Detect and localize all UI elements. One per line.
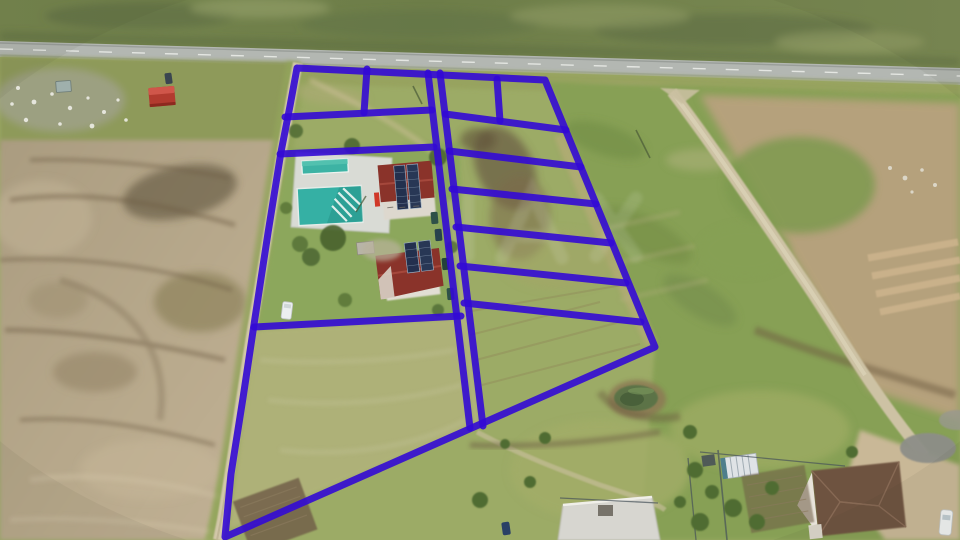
blue-barrel bbox=[501, 522, 511, 536]
aerial-photo bbox=[0, 0, 960, 540]
dark-shed bbox=[701, 454, 715, 467]
courtyard bbox=[362, 239, 402, 261]
white-van bbox=[281, 301, 293, 319]
foundation-slab bbox=[558, 497, 660, 540]
scene-layer bbox=[0, 0, 960, 540]
house-2-solar-panels bbox=[404, 240, 433, 273]
red-container bbox=[148, 86, 176, 107]
debris-area bbox=[0, 57, 300, 150]
tool-shed bbox=[56, 80, 72, 92]
lap-pool bbox=[302, 159, 349, 174]
main-pool bbox=[297, 185, 363, 225]
